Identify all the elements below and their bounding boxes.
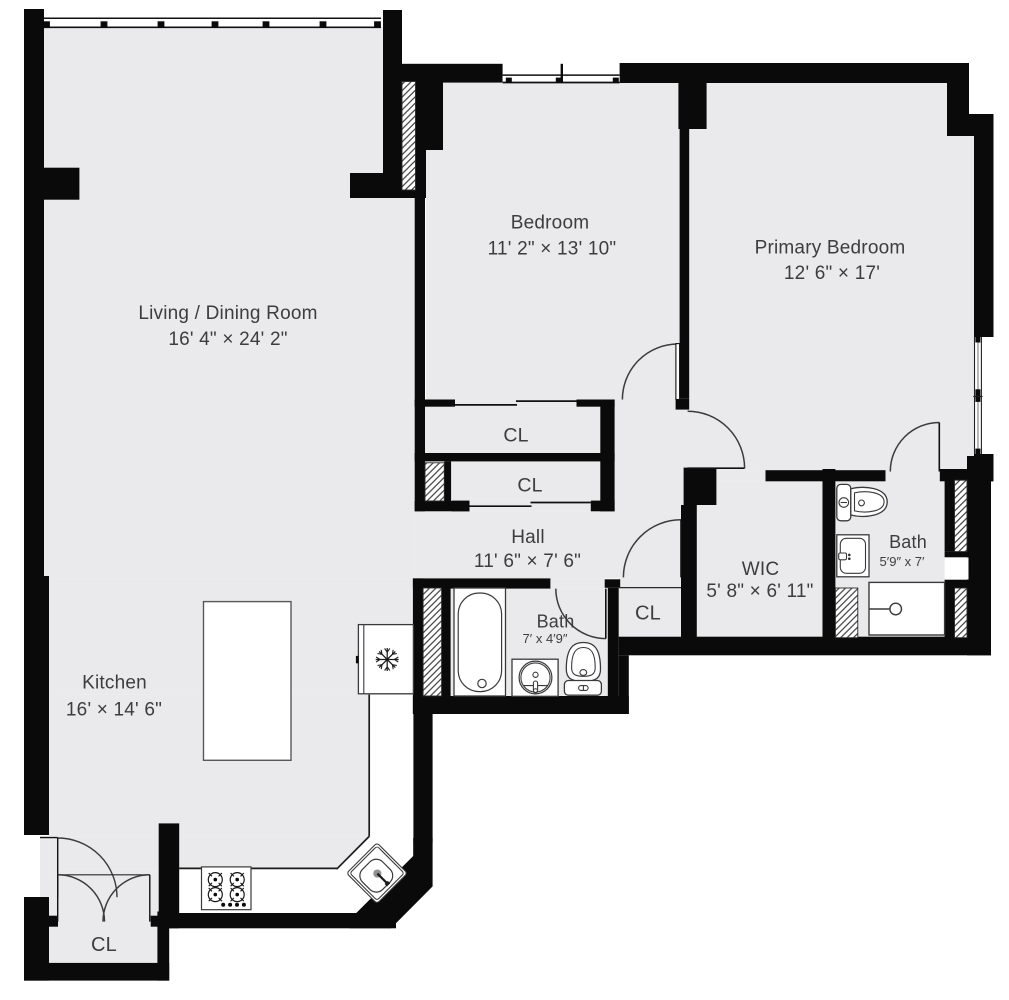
svg-text:Primary Bedroom: Primary Bedroom (755, 238, 906, 259)
svg-text:CL: CL (503, 425, 528, 447)
svg-text:Bedroom: Bedroom (511, 213, 590, 234)
svg-text:11' 2" × 13' 10": 11' 2" × 13' 10" (488, 239, 617, 260)
svg-text:11' 6" × 7' 6": 11' 6" × 7' 6" (474, 551, 581, 572)
svg-text:Bath: Bath (889, 532, 927, 552)
svg-text:5′9″ x 7′: 5′9″ x 7′ (880, 554, 925, 569)
svg-text:CL: CL (635, 603, 661, 625)
svg-text:16' 4" × 24' 2": 16' 4" × 24' 2" (168, 329, 287, 350)
svg-text:16' × 14' 6": 16' × 14' 6" (66, 700, 162, 721)
svg-text:CL: CL (517, 475, 542, 497)
svg-text:Bath: Bath (537, 612, 575, 632)
svg-text:Kitchen: Kitchen (82, 673, 147, 694)
svg-text:Hall: Hall (511, 527, 545, 548)
svg-text:5' 8" × 6' 11": 5' 8" × 6' 11" (706, 581, 813, 602)
svg-text:CL: CL (91, 934, 117, 956)
svg-text:7′ x 4′9″: 7′ x 4′9″ (523, 631, 568, 646)
svg-text:WIC: WIC (742, 559, 780, 580)
svg-text:12' 6" × 17': 12' 6" × 17' (784, 263, 880, 284)
svg-text:Living / Dining Room: Living / Dining Room (138, 303, 317, 324)
